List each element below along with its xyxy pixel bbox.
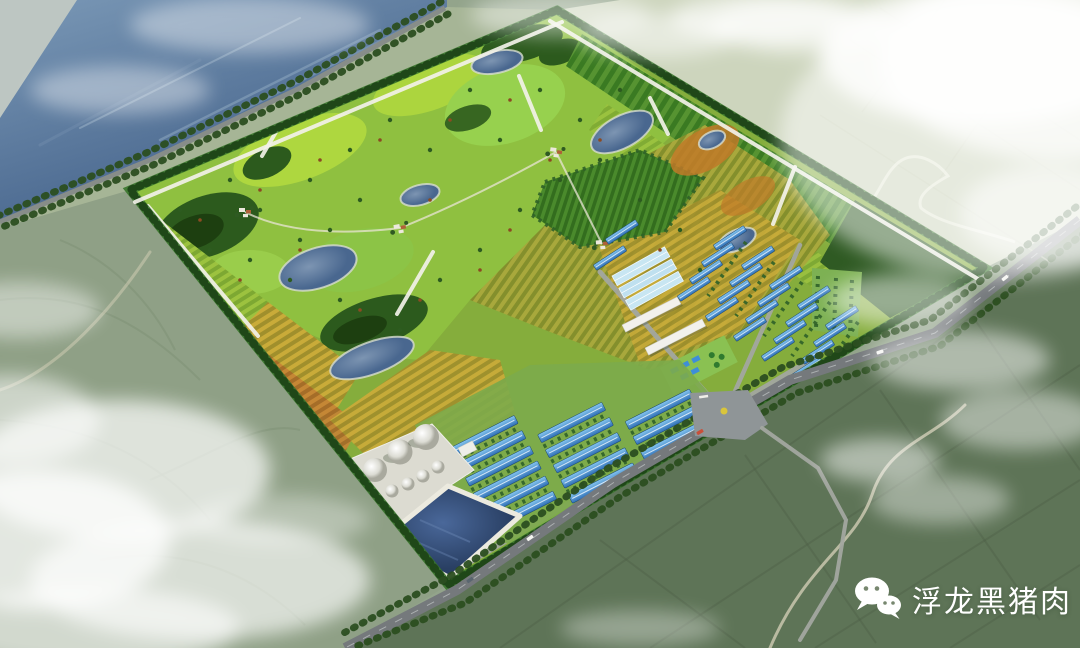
tree-dot — [288, 278, 292, 282]
tree-dot — [248, 258, 252, 262]
tree-dot — [518, 208, 522, 212]
tree-dot — [538, 88, 542, 92]
accent-tree-dot — [508, 228, 512, 232]
tree-dot — [638, 198, 642, 202]
tree-dot — [388, 118, 392, 122]
cloud — [870, 330, 1050, 390]
tree-dot — [468, 88, 472, 92]
cloud — [830, 274, 970, 326]
cloud — [30, 66, 210, 114]
aerial-rendering-stage: 浮龙黑猪肉 — [0, 0, 1080, 648]
tree-dot — [348, 148, 352, 152]
accent-tree-dot — [598, 138, 602, 142]
cloud — [820, 438, 940, 482]
cloud — [870, 476, 1010, 524]
aerial-rendering — [0, 0, 1080, 648]
watermark: 浮龙黑猪肉 — [854, 577, 1072, 621]
tree-dot — [428, 148, 432, 152]
accent-tree-dot — [298, 248, 302, 252]
cloud — [190, 495, 370, 545]
tree-dot — [328, 228, 332, 232]
cloud — [560, 610, 720, 646]
accent-tree-dot — [418, 298, 422, 302]
silo — [417, 470, 430, 483]
tree-dot — [308, 178, 312, 182]
accent-tree-dot — [548, 158, 552, 162]
tree-dot — [578, 118, 582, 122]
tree-dot — [618, 88, 622, 92]
tree-dot — [478, 248, 482, 252]
tree-dot — [438, 278, 442, 282]
accent-tree-dot — [198, 218, 202, 222]
tree-dot — [398, 328, 402, 332]
tree-dot — [558, 178, 562, 182]
silo — [402, 478, 415, 491]
silo — [432, 461, 445, 474]
tree-dot — [598, 158, 602, 162]
tree-dot — [298, 238, 302, 242]
accent-tree-dot — [258, 188, 262, 192]
accent-tree-dot — [428, 198, 432, 202]
accent-tree-dot — [658, 248, 662, 252]
accent-tree-dot — [478, 268, 482, 272]
tree-dot — [698, 268, 702, 272]
tree-dot — [258, 208, 262, 212]
tree-dot — [678, 228, 682, 232]
tree-dot — [498, 138, 502, 142]
silo — [386, 485, 399, 498]
tree-dot — [338, 298, 342, 302]
tree-dot — [358, 198, 362, 202]
accent-tree-dot — [238, 278, 242, 282]
accent-tree-dot — [378, 138, 382, 142]
tree-dot — [208, 248, 212, 252]
accent-tree-dot — [448, 118, 452, 122]
watermark-text: 浮龙黑猪肉 — [912, 577, 1072, 621]
accent-tree-dot — [318, 158, 322, 162]
accent-tree-dot — [508, 98, 512, 102]
accent-tree-dot — [358, 308, 362, 312]
wechat-icon — [854, 577, 902, 621]
tree-dot — [228, 178, 232, 182]
plaza-marker — [721, 408, 728, 415]
tree-dot — [178, 208, 182, 212]
